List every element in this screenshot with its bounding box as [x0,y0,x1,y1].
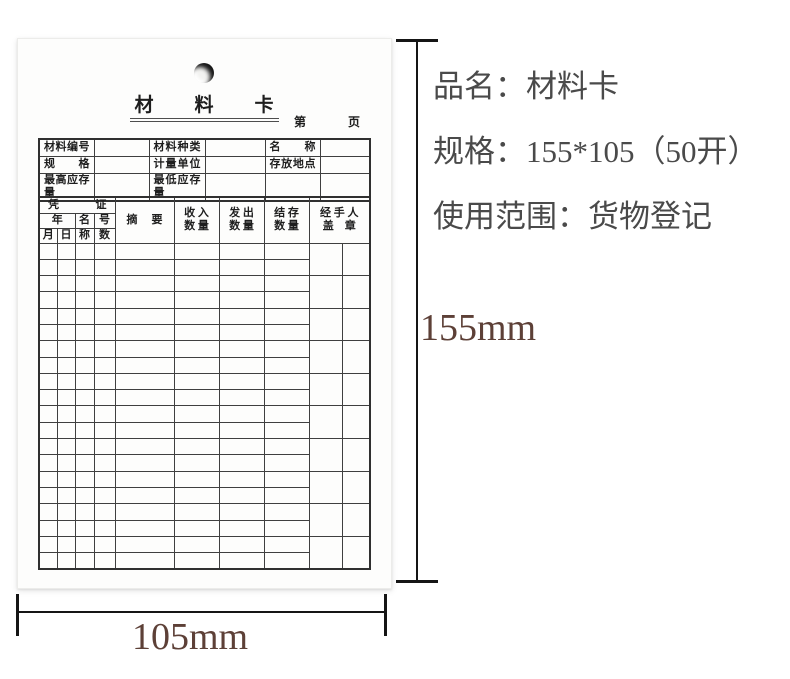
ledger-cell [75,259,94,275]
ledger-cell [57,487,75,503]
ledger-cell [94,243,115,259]
info-row: 规格 计量单位 存放地点 [39,156,370,173]
handler-cell [342,471,370,504]
ledger-cell [264,373,309,389]
ledger-cell [115,439,174,455]
ledger-cell [264,243,309,259]
ledger-cell [219,520,264,536]
ledger-cell [219,373,264,389]
ledger-cell [57,520,75,536]
voucher-header: 凭 证 [39,197,115,213]
ledger-cell [75,308,94,324]
ledger-cell [39,292,57,308]
handler-cell [309,504,342,537]
ledger-row [39,276,370,292]
ledger-cell [115,390,174,406]
ledger-cell [174,341,219,357]
ledger-cell [115,471,174,487]
ledger-cell [219,390,264,406]
handler-cell [342,536,370,569]
ledger-cell [115,406,174,422]
width-dimension-left-cap [16,594,19,636]
ledger-cell [264,487,309,503]
ledger-cell [75,504,94,520]
ledger-cell [39,243,57,259]
ledger-cell [94,324,115,340]
ledger-cell [39,276,57,292]
ledger-cell [264,553,309,569]
ledger-cell [219,455,264,471]
info-value [320,156,370,173]
ledger-cell [57,259,75,275]
handler-cell [342,276,370,309]
ledger-cell [264,292,309,308]
ledger-row [39,243,370,259]
balance-qty-header: 结 存 数 量 [264,197,309,243]
ledger-cell [94,276,115,292]
ledger-cell [39,553,57,569]
ledger-cell [75,406,94,422]
in-qty-header: 收 入 数 量 [174,197,219,243]
ledger-cell [219,243,264,259]
ledger-cell [174,276,219,292]
handler-cell [309,471,342,504]
ledger-cell [264,341,309,357]
ledger-cell [115,243,174,259]
ledger-cell [57,422,75,438]
ledger-cell [264,536,309,552]
ledger-cell [264,471,309,487]
name-bottom-header: 称 [75,228,94,243]
ledger-cell [264,390,309,406]
ledger-cell [39,439,57,455]
info-label: 材料种类 [149,139,205,156]
ledger-cell [94,439,115,455]
info-value [94,139,149,156]
ledger-cell [174,406,219,422]
ledger-cell [115,324,174,340]
ledger-cell [174,553,219,569]
ledger-cell [57,406,75,422]
product-photo: 材 料 卡 第 页 材料编号 材料种类 名称 [0,0,790,679]
handler-cell [309,308,342,341]
ledger-row [39,308,370,324]
ledger-cell [75,455,94,471]
number-bottom-header: 数 [94,228,115,243]
ledger-header-row: 凭 证 摘 要 收 入 数 量 发 出 数 量 结 存 数 量 经 手 人 盖 … [39,197,370,213]
ledger-cell [57,439,75,455]
ledger-cell [57,357,75,373]
ledger-table: 凭 证 摘 要 收 入 数 量 发 出 数 量 结 存 数 量 经 手 人 盖 … [38,196,371,570]
ledger-cell [219,422,264,438]
width-dimension-right-cap [384,594,387,636]
ledger-cell [75,471,94,487]
info-value [320,139,370,156]
ledger-cell [94,504,115,520]
ledger-cell [219,439,264,455]
ledger-cell [57,324,75,340]
ledger-cell [219,553,264,569]
ledger-cell [174,324,219,340]
ledger-cell [219,259,264,275]
ledger-cell [115,373,174,389]
height-dimension-label: 155mm [420,308,536,348]
width-dimension-line [17,611,387,613]
ledger-cell [115,292,174,308]
punch-hole-icon [194,63,214,83]
ledger-cell [75,422,94,438]
ledger-cell [75,324,94,340]
info-value [205,156,265,173]
ledger-cell [219,324,264,340]
ledger-cell [39,390,57,406]
ledger-cell [264,406,309,422]
height-dimension-top-cap [396,39,438,42]
ledger-cell [219,357,264,373]
info-value [94,156,149,173]
ledger-cell [57,373,75,389]
ledger-cell [75,390,94,406]
number-top-header: 号 [94,213,115,228]
ledger-cell [57,243,75,259]
page-indicator: 第 页 [294,115,360,129]
info-label: 存放地点 [265,156,320,173]
ledger-row [39,471,370,487]
ledger-cell [94,373,115,389]
ledger-cell [115,487,174,503]
ledger-cell [94,292,115,308]
ledger-cell [39,324,57,340]
ledger-cell [174,422,219,438]
ledger-cell [115,455,174,471]
ledger-cell [115,357,174,373]
ledger-cell [174,308,219,324]
ledger-cell [264,455,309,471]
ledger-cell [39,520,57,536]
ledger-cell [174,504,219,520]
ledger-cell [174,373,219,389]
out-qty-header: 发 出 数 量 [219,197,264,243]
info-label: 材料编号 [39,139,94,156]
ledger-cell [57,504,75,520]
ledger-cell [219,341,264,357]
product-spec-text: 规格：155*105（50开） [433,135,759,168]
handler-cell [342,406,370,439]
ledger-cell [57,276,75,292]
ledger-cell [57,455,75,471]
ledger-row [39,406,370,422]
ledger-cell [94,259,115,275]
ledger-cell [57,341,75,357]
ledger-cell [75,341,94,357]
summary-header: 摘 要 [115,197,174,243]
ledger-cell [219,292,264,308]
info-table: 材料编号 材料种类 名称 规格 计量单位 存放地点 最高应存量 [38,138,371,202]
ledger-cell [174,471,219,487]
ledger-cell [264,308,309,324]
ledger-cell [219,536,264,552]
ledger-cell [39,406,57,422]
handler-cell [342,341,370,374]
ledger-cell [115,422,174,438]
ledger-cell [75,439,94,455]
info-label: 名称 [265,139,320,156]
info-label: 计量单位 [149,156,205,173]
handler-cell [342,373,370,406]
ledger-cell [219,406,264,422]
ledger-cell [39,357,57,373]
card-title: 材 料 卡 [130,96,278,122]
ledger-cell [94,487,115,503]
ledger-cell [115,259,174,275]
ledger-cell [174,259,219,275]
ledger-cell [115,536,174,552]
ledger-row [39,341,370,357]
ledger-cell [219,276,264,292]
ledger-cell [174,536,219,552]
ledger-cell [94,553,115,569]
ledger-body [39,243,370,569]
ledger-cell [174,357,219,373]
ledger-cell [39,259,57,275]
ledger-cell [94,357,115,373]
handler-cell [309,536,342,569]
ledger-cell [75,357,94,373]
ledger-cell [39,373,57,389]
height-dimension-line [416,40,418,582]
ledger-cell [115,308,174,324]
handler-cell [342,308,370,341]
ledger-cell [57,553,75,569]
product-info-panel: 品名：材料卡 规格：155*105（50开） 使用范围：货物登记 [433,70,759,265]
year-header: 年 [39,213,75,228]
ledger-cell [75,276,94,292]
handler-cell [309,341,342,374]
material-card: 材 料 卡 第 页 材料编号 材料种类 名称 [17,38,392,589]
ledger-cell [75,520,94,536]
ledger-cell [174,455,219,471]
handler-cell [342,504,370,537]
ledger-cell [94,422,115,438]
ledger-cell [264,324,309,340]
ledger-row [39,536,370,552]
ledger-cell [264,439,309,455]
name-top-header: 名 [75,213,94,228]
ledger-cell [174,520,219,536]
ledger-cell [39,504,57,520]
ledger-cell [264,259,309,275]
handler-cell [342,243,370,276]
ledger-cell [174,292,219,308]
ledger-cell [115,276,174,292]
info-value [205,139,265,156]
ledger-cell [219,504,264,520]
ledger-cell [115,553,174,569]
ledger-cell [264,276,309,292]
ledger-cell [264,520,309,536]
handler-cell [309,406,342,439]
ledger-cell [115,504,174,520]
product-name-text: 品名：材料卡 [433,70,759,103]
ledger-cell [75,292,94,308]
handler-cell [309,276,342,309]
handler-cell [309,243,342,276]
ledger-cell [264,504,309,520]
ledger-cell [94,308,115,324]
ledger-cell [39,536,57,552]
info-label: 规格 [39,156,94,173]
ledger-cell [174,439,219,455]
height-dimension-bottom-cap [396,580,438,583]
handler-header: 经 手 人 盖 章 [309,197,370,243]
ledger-cell [94,341,115,357]
page-suffix-label: 页 [348,115,360,129]
ledger-cell [219,487,264,503]
ledger-cell [75,487,94,503]
ledger-cell [57,390,75,406]
day-header: 日 [57,228,75,243]
ledger-cell [94,520,115,536]
ledger-cell [57,536,75,552]
ledger-cell [94,471,115,487]
ledger-cell [39,308,57,324]
ledger-row [39,439,370,455]
handler-cell [309,373,342,406]
ledger-cell [57,308,75,324]
ledger-cell [94,406,115,422]
ledger-cell [94,390,115,406]
ledger-cell [75,553,94,569]
ledger-cell [39,341,57,357]
ledger-cell [219,471,264,487]
ledger-cell [115,341,174,357]
handler-cell [309,439,342,472]
product-usage-text: 使用范围：货物登记 [433,200,759,233]
ledger-cell [174,390,219,406]
month-header: 月 [39,228,57,243]
page-prefix-label: 第 [294,115,306,129]
ledger-cell [174,243,219,259]
ledger-cell [75,373,94,389]
ledger-cell [94,536,115,552]
ledger-cell [174,487,219,503]
ledger-cell [264,357,309,373]
ledger-cell [57,471,75,487]
ledger-cell [115,520,174,536]
info-row: 材料编号 材料种类 名称 [39,139,370,156]
handler-cell [342,439,370,472]
ledger-cell [94,455,115,471]
ledger-cell [264,422,309,438]
ledger-row [39,373,370,389]
ledger-cell [39,422,57,438]
ledger-cell [39,471,57,487]
ledger-row [39,504,370,520]
ledger-cell [39,455,57,471]
ledger-cell [219,308,264,324]
ledger-cell [75,243,94,259]
ledger-cell [75,536,94,552]
width-dimension-label: 105mm [110,617,270,657]
ledger-cell [57,292,75,308]
ledger-cell [39,487,57,503]
